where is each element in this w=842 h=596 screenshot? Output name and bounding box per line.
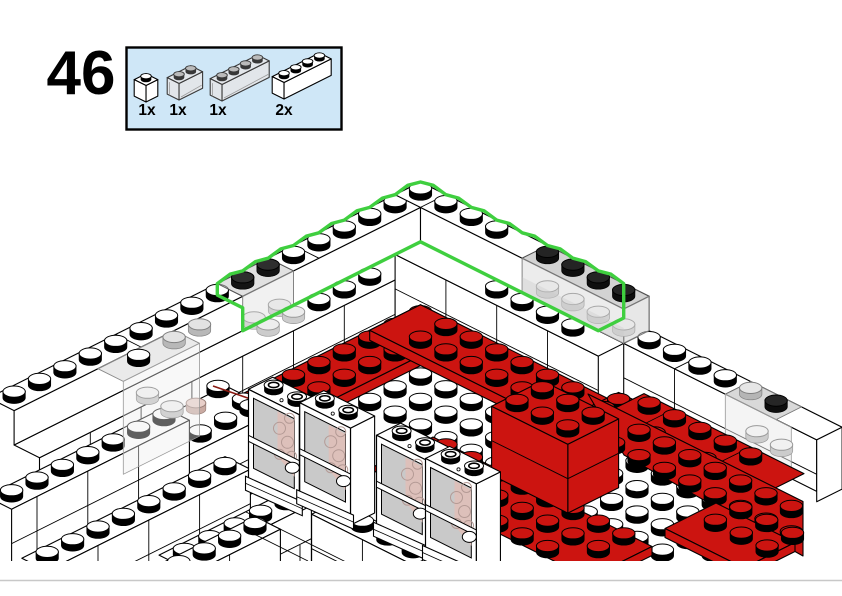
svg-text:1x: 1x [138,102,156,119]
svg-text:1x: 1x [209,102,227,119]
svg-text:1x: 1x [169,102,187,119]
svg-text:46: 46 [47,39,116,108]
svg-text:2x: 2x [275,102,293,119]
